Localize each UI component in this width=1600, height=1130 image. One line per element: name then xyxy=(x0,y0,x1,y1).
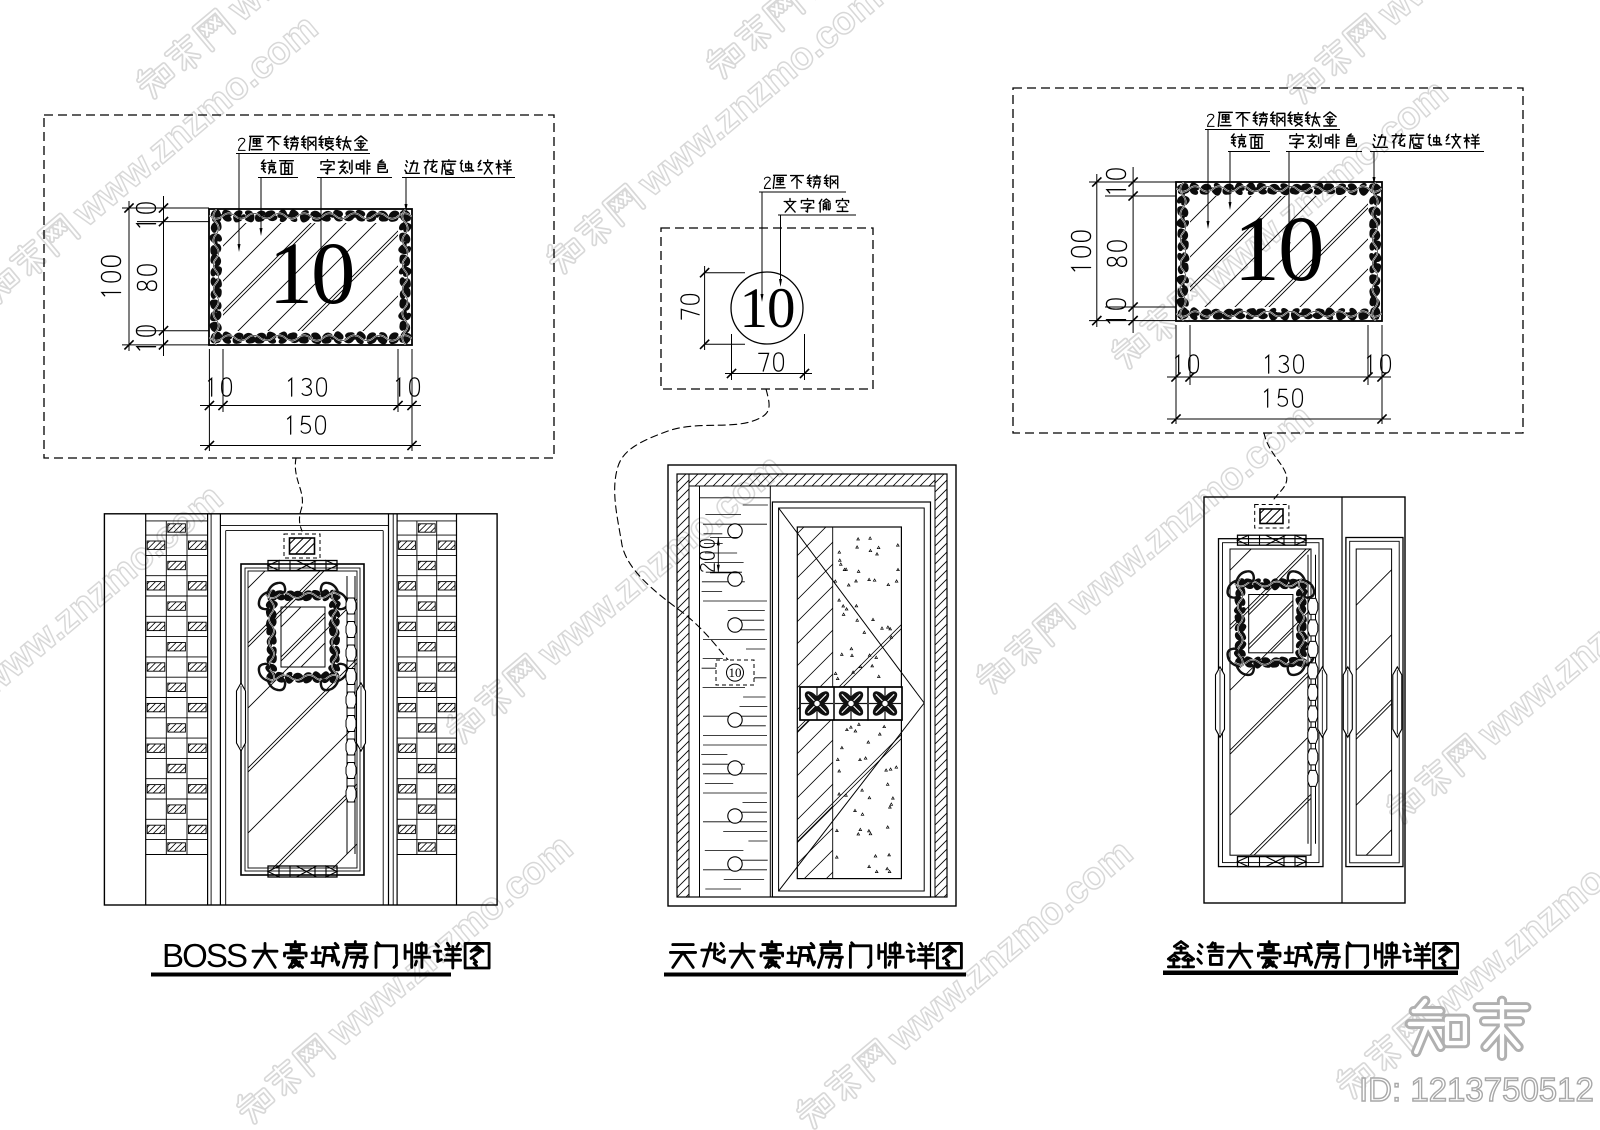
svg-text:ID: 1213750512: ID: 1213750512 xyxy=(1359,1071,1594,1108)
svg-text:10: 10 xyxy=(1234,198,1323,301)
svg-text:10: 10 xyxy=(729,665,742,680)
svg-text:10: 10 xyxy=(740,277,795,340)
svg-text:10: 10 xyxy=(269,225,354,323)
svg-text:BOSS: BOSS xyxy=(162,937,248,974)
